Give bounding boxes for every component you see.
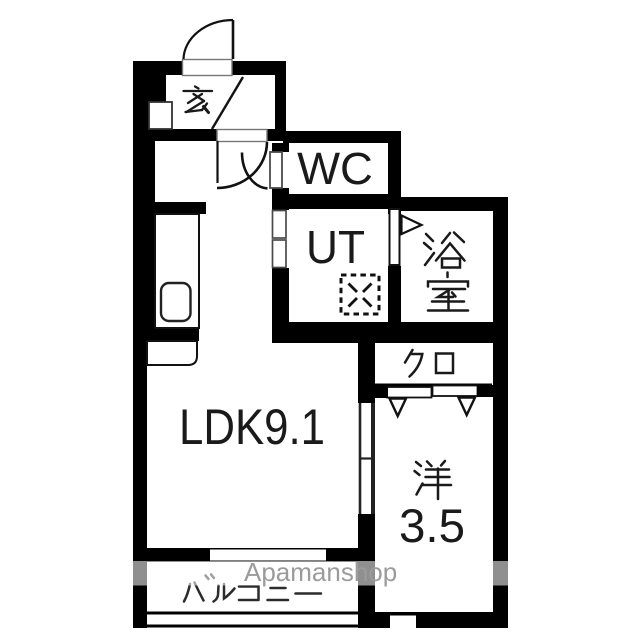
svg-text:WC: WC bbox=[297, 143, 373, 194]
svg-text:UT: UT bbox=[306, 221, 365, 273]
svg-text:Apamanshop: Apamanshop bbox=[244, 557, 397, 587]
svg-text:3.5: 3.5 bbox=[399, 500, 465, 553]
svg-text:LDK9.1: LDK9.1 bbox=[179, 399, 325, 455]
